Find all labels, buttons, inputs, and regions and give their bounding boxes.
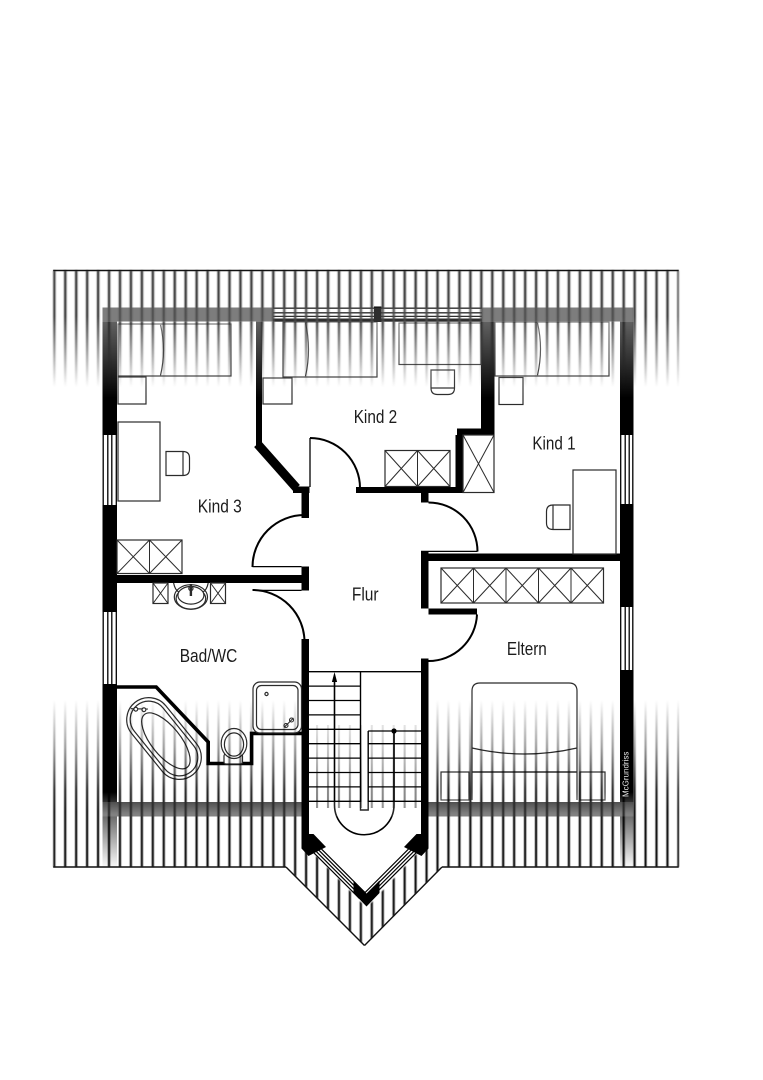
svg-text:Kind 2: Kind 2 (354, 407, 398, 427)
svg-text:Eltern: Eltern (507, 639, 547, 659)
svg-text:Kind 1: Kind 1 (532, 434, 575, 454)
svg-text:Flur: Flur (352, 585, 379, 605)
svg-text:McGrundriss: McGrundriss (622, 752, 631, 797)
svg-text:Kind 3: Kind 3 (198, 497, 242, 517)
svg-text:Bad/WC: Bad/WC (180, 646, 238, 666)
